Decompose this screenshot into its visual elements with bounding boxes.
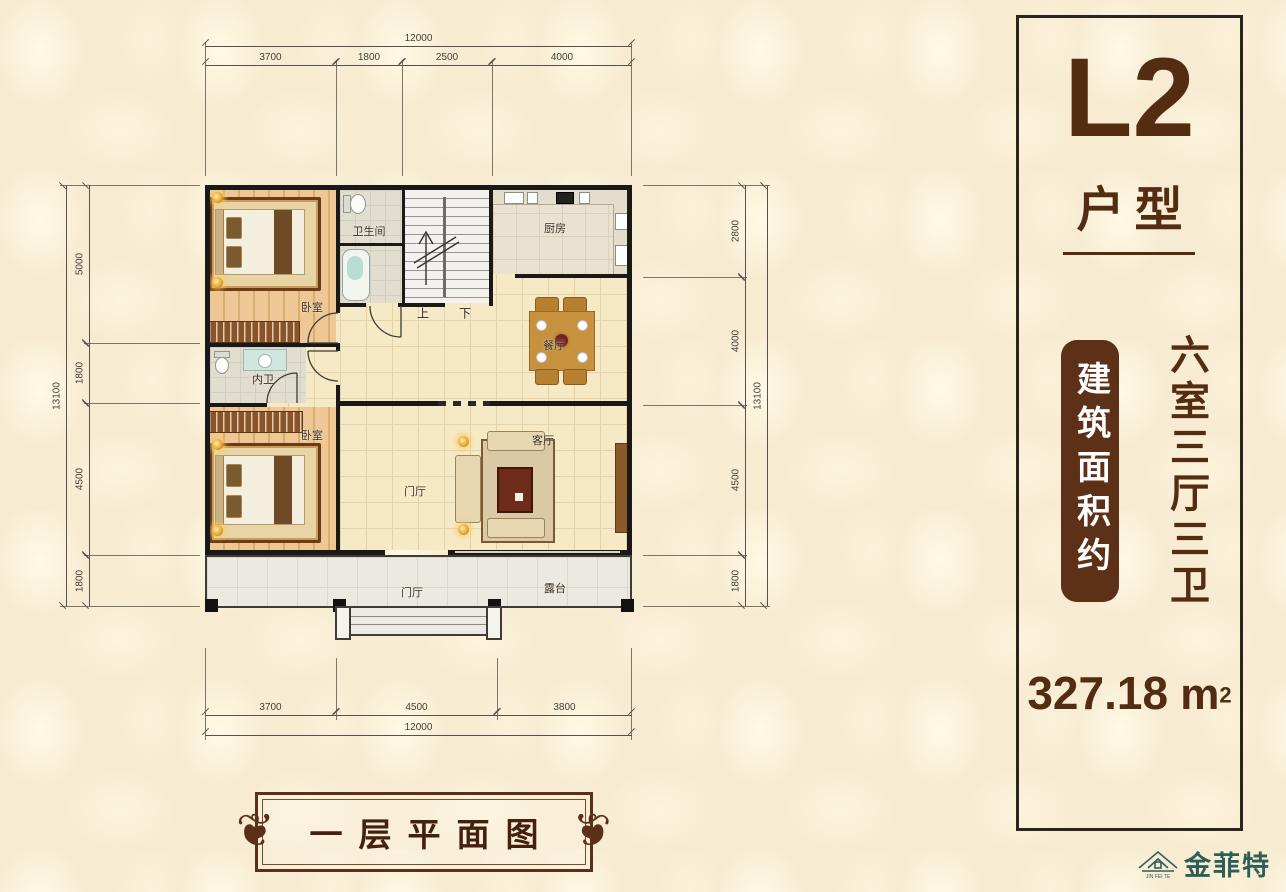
dimension-left-seg: 1800: [89, 555, 90, 606]
logo-tagline: JIN FEI TE: [1146, 874, 1171, 880]
unit-code-suffix: 户型: [1019, 170, 1240, 240]
dimension-top-seg: 3700: [205, 65, 336, 66]
dining-chair: [535, 369, 559, 385]
cased-opening: [438, 401, 490, 406]
step-line: [347, 616, 490, 617]
extension-line: [402, 60, 403, 176]
wall: [336, 243, 402, 246]
wall-lamp-icon: [212, 192, 223, 203]
sink-icon: [258, 354, 272, 368]
extension-line: [643, 277, 747, 278]
extension-line: [205, 648, 206, 740]
divider-rule: [1063, 252, 1195, 255]
dimension-bottom-total: 12000: [205, 735, 632, 736]
extension-line: [336, 60, 337, 176]
area-value-line: 327.18 m2: [1019, 666, 1240, 720]
dimension-top-seg: 1800: [336, 65, 402, 66]
dimension-right-total: 13100: [767, 185, 768, 606]
wall-lamp-icon: [212, 525, 223, 536]
bed-runner: [274, 456, 292, 524]
bedroom-bottom-bed: [215, 455, 305, 525]
floorplan-page: 卧室 卫生间 厨房 餐厅 内卫 卧室 门厅 客厅 上 下 门厅 露台 12000…: [0, 0, 1286, 892]
pillow: [226, 246, 242, 268]
pillow: [226, 464, 242, 487]
room-label-bedroom-top: 卧室: [301, 299, 323, 315]
bathtub-water: [347, 256, 363, 280]
step-line: [347, 624, 490, 625]
dimension-bottom-seg: 3700: [205, 715, 336, 716]
extension-line: [60, 606, 200, 607]
window-band: [455, 551, 620, 553]
kitchen-cabinet-icon: [527, 192, 538, 204]
house-roof-icon: JIN FEI TE: [1136, 846, 1180, 880]
dimension-bottom-seg: 4500: [336, 715, 497, 716]
wall: [205, 185, 632, 190]
room-label-terrace: 露台: [544, 580, 566, 596]
kitchen-cabinet-icon: [579, 192, 590, 204]
sofa: [455, 455, 481, 523]
dimension-left-total: 13100: [66, 185, 67, 606]
pier: [621, 599, 634, 612]
wall: [336, 385, 340, 550]
wall: [336, 185, 340, 313]
step-sidewall: [335, 606, 351, 640]
room-label-kitchen: 厨房: [544, 220, 566, 236]
bedroom-top-bed: [215, 209, 305, 275]
brand-logo: JIN FEI TE 金菲特: [1136, 846, 1271, 880]
room-label-inner-bathroom: 内卫: [252, 371, 274, 387]
dimension-top-seg: 2500: [402, 65, 492, 66]
terrace: 门厅 露台: [205, 555, 632, 608]
wall-lamp-icon: [212, 439, 223, 450]
wall: [627, 185, 632, 555]
brand-name: 金菲特: [1184, 853, 1271, 880]
room-label-bathroom: 卫生间: [353, 223, 386, 239]
tabletop-item: [515, 493, 523, 501]
stairs-direction-arrow: [408, 205, 478, 295]
vanity-counter: [243, 349, 287, 371]
extension-line: [84, 403, 200, 404]
toilet-icon: [350, 194, 366, 214]
bed-headboard: [216, 456, 224, 524]
area-unit: m: [1180, 670, 1219, 719]
stove-icon: [556, 192, 574, 204]
coffee-table: [497, 467, 533, 513]
room-label-bedroom-bottom: 卧室: [301, 427, 323, 443]
dimension-top-seg: 4000: [492, 65, 632, 66]
dimension-right-seg: 2800: [745, 185, 746, 277]
plate-icon: [536, 352, 547, 363]
room-label-dining: 餐厅: [543, 337, 565, 353]
extension-line: [643, 555, 747, 556]
dimension-left-seg: 5000: [89, 185, 90, 343]
dimension-left-seg: 4500: [89, 403, 90, 555]
extension-line: [84, 555, 200, 556]
dimension-right-seg: 4000: [745, 277, 746, 405]
flourish-icon: ❦: [236, 807, 275, 853]
pillow: [226, 217, 242, 239]
bathtub-icon: [342, 249, 370, 301]
extension-line: [643, 405, 747, 406]
wall: [489, 185, 493, 306]
dimension-bottom-seg: 3800: [497, 715, 632, 716]
extension-line: [643, 606, 770, 607]
dimension-right-seg: 4500: [745, 405, 746, 555]
flourish-icon: ❦: [573, 807, 612, 853]
extension-line: [492, 60, 493, 176]
floor-plan: 卧室 卫生间 厨房 餐厅 内卫 卧室 门厅 客厅 上 下: [205, 185, 632, 555]
plate-icon: [577, 320, 588, 331]
entry-steps: [335, 606, 502, 636]
pier: [205, 599, 218, 612]
extension-line: [631, 648, 632, 740]
extension-line: [60, 185, 200, 186]
wall: [402, 185, 405, 303]
plate-icon: [536, 320, 547, 331]
dimension-right-seg: 1800: [745, 555, 746, 606]
wall: [336, 343, 340, 351]
extension-line: [643, 185, 770, 186]
unit-code: L2: [1019, 48, 1240, 149]
dining-chair: [563, 369, 587, 385]
pillow: [226, 495, 242, 518]
stairs-up-label: 上: [417, 305, 429, 322]
area-value: 327.18: [1027, 667, 1168, 719]
drawing-title-frame: 一层平面图 ❦ ❦: [255, 792, 593, 872]
wall: [336, 303, 366, 307]
room-label-foyer: 门厅: [404, 483, 426, 499]
area-exponent: 2: [1219, 683, 1231, 708]
drawing-title-inner-border: 一层平面图: [262, 799, 586, 865]
step-sidewall: [486, 606, 502, 640]
unit-info-panel: L2 户型 建筑面积约 六室三厅三卫 327.18 m2: [1016, 15, 1243, 831]
plate-icon: [577, 352, 588, 363]
area-label-box: 建筑面积约: [1061, 340, 1119, 602]
wardrobe: [208, 411, 303, 433]
drawing-title: 一层平面图: [294, 808, 555, 856]
extension-line: [84, 343, 200, 344]
kitchen-sink-icon: [504, 192, 524, 204]
wall: [515, 274, 632, 278]
sofa: [487, 518, 545, 538]
wall: [205, 343, 336, 347]
layout-summary: 六室三厅三卫: [1157, 334, 1215, 640]
wall: [205, 185, 210, 555]
room-label-living: 客厅: [532, 432, 554, 448]
dimension-top-total: 12000: [205, 46, 632, 47]
floor-lamp-icon: [458, 436, 469, 447]
wall: [205, 403, 267, 407]
wall-lamp-icon: [212, 277, 223, 288]
area-label-text: 建筑面积约: [1066, 361, 1115, 581]
toilet-icon: [215, 357, 229, 374]
bed-runner: [274, 210, 292, 274]
floor-lamp-icon: [458, 524, 469, 535]
stairs-down-label: 下: [459, 305, 471, 322]
dimension-left-seg: 1800: [89, 343, 90, 403]
bed-headboard: [216, 210, 224, 274]
wardrobe: [208, 321, 300, 343]
room-label-entry-foyer: 门厅: [401, 584, 423, 600]
